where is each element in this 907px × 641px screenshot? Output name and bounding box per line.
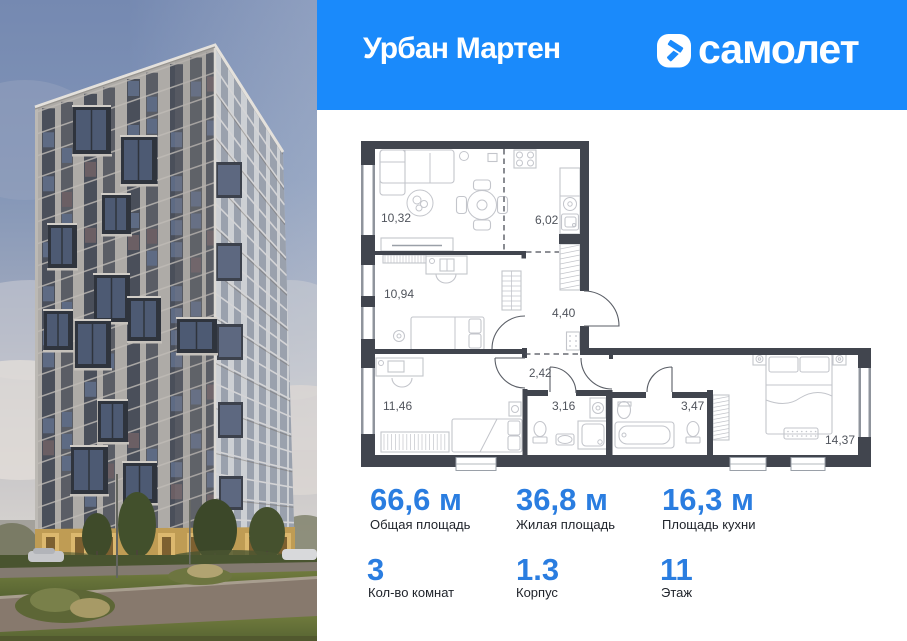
svg-text:11,46: 11,46 <box>383 399 412 413</box>
svg-text:3,47: 3,47 <box>681 399 705 413</box>
svg-text:10,32: 10,32 <box>381 211 411 225</box>
svg-text:4,40: 4,40 <box>552 306 576 320</box>
svg-text:10,94: 10,94 <box>384 287 414 301</box>
svg-text:2,42: 2,42 <box>529 368 551 380</box>
svg-text:6,02: 6,02 <box>535 213 559 227</box>
svg-text:14,37: 14,37 <box>825 433 855 447</box>
svg-text:3,16: 3,16 <box>552 399 576 413</box>
